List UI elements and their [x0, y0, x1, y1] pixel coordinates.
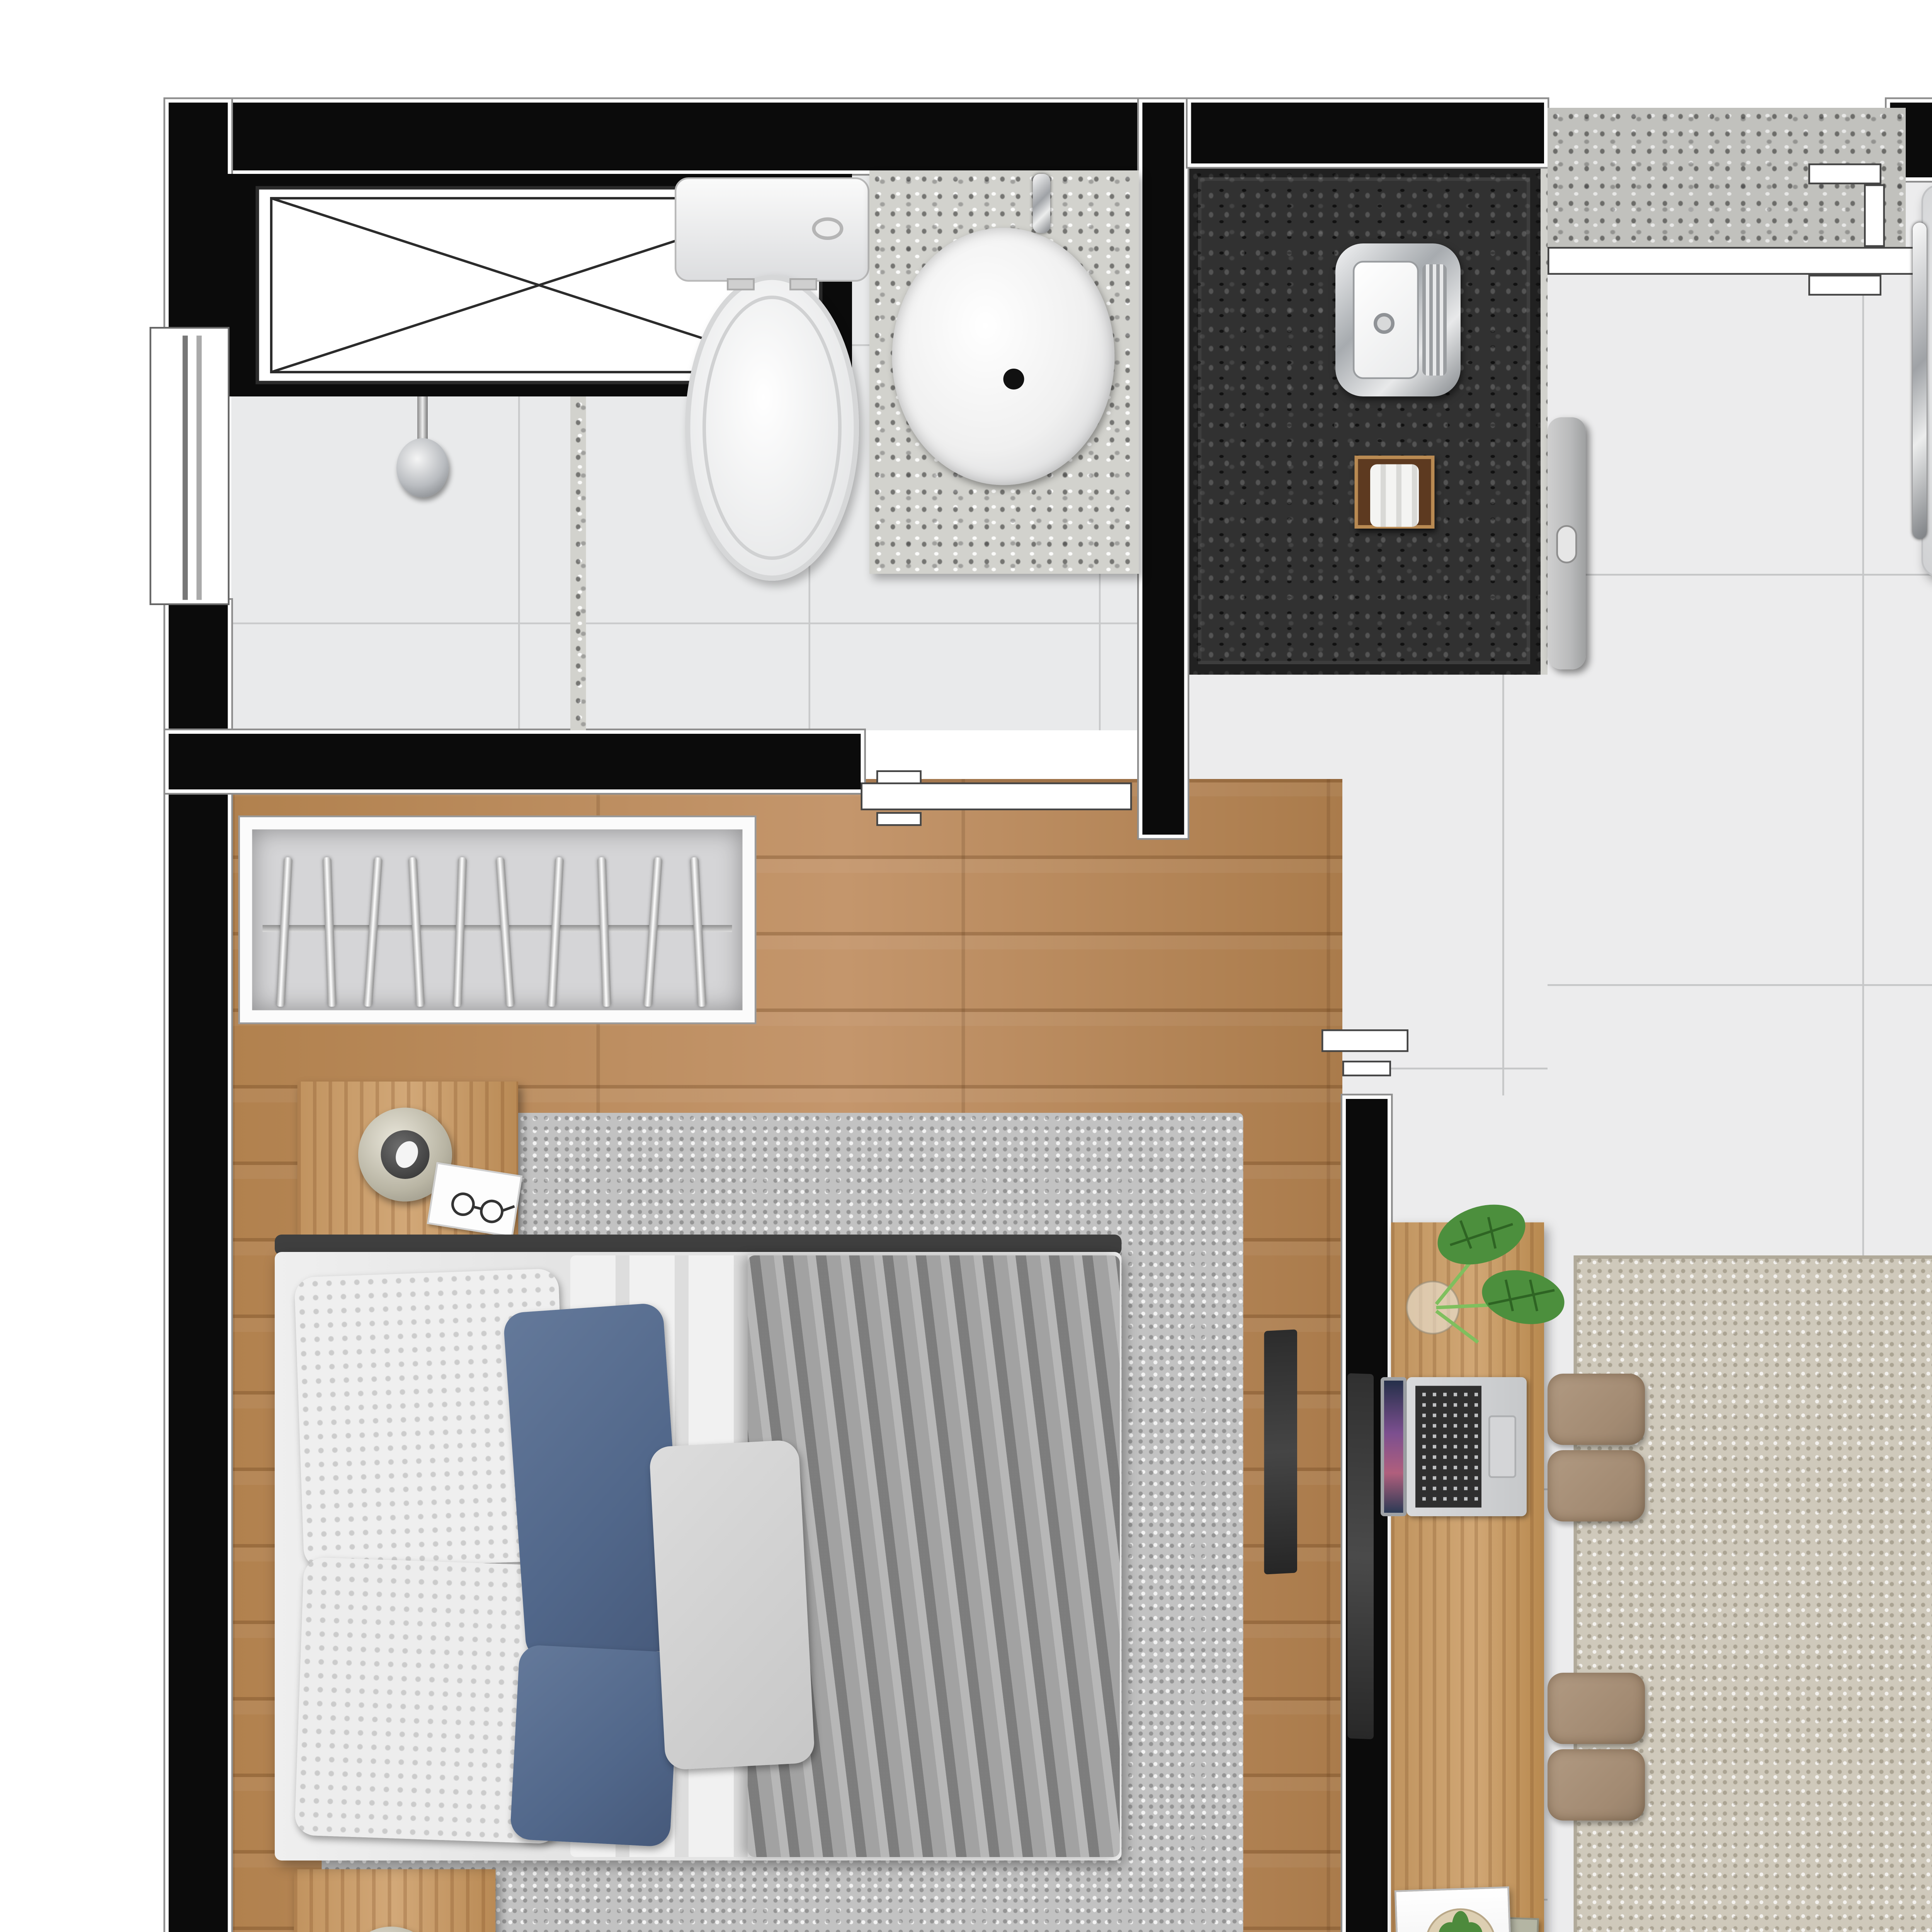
wall-laundry-top [1188, 99, 1548, 167]
laptop [1381, 1377, 1527, 1516]
bathroom-faucet-icon [1033, 174, 1050, 233]
hanger-icon [643, 857, 662, 1007]
window-pane-line [183, 336, 188, 600]
bed [275, 1235, 1122, 1861]
floor-plan: Richard Meier [0, 0, 1932, 1932]
bedroom-door-leaf [861, 782, 1132, 810]
hanger-icon [496, 857, 515, 1007]
hanger-icon [690, 857, 706, 1007]
monstera-plant-icon [1374, 1196, 1565, 1370]
hanger-icon [547, 857, 564, 1007]
laundry-washboard [1422, 264, 1447, 376]
laptop-screen [1381, 1377, 1407, 1516]
entry-door-hinge [1864, 184, 1885, 247]
basin-drain [1003, 369, 1024, 389]
toilet-seat-line [702, 296, 842, 560]
door-handle [876, 770, 922, 784]
laundry-drain [1374, 313, 1395, 334]
shower-granite-divider [570, 396, 586, 730]
toilet-tank [675, 177, 869, 282]
living-rug [1574, 1255, 1932, 1932]
laptop-trackpad [1488, 1415, 1516, 1478]
partition-door-jamb [1342, 1061, 1391, 1077]
stool-cushion [1548, 1374, 1645, 1445]
living-tv [1348, 1373, 1374, 1739]
entry-door-leaf [1548, 247, 1932, 275]
wall-bathroom-right [1139, 99, 1188, 838]
hanger-icon [323, 857, 337, 1007]
wall-left-upper [165, 99, 231, 331]
hanger-icon [453, 857, 467, 1007]
wall-left-main [165, 600, 231, 1932]
entry-door-hinge [1808, 163, 1881, 184]
laptop-keyboard [1415, 1386, 1481, 1508]
stool-1 [1548, 1374, 1645, 1523]
nightstand-2 [294, 1869, 496, 1932]
stool-cushion [1548, 1749, 1645, 1821]
shower-head-icon [396, 438, 449, 497]
stool-2 [1548, 1673, 1645, 1822]
entry-door-hinge [1808, 275, 1881, 296]
toilet-flush-button [812, 218, 844, 240]
partition-door-jamb [1321, 1029, 1408, 1052]
hanger-icon [364, 857, 383, 1007]
towel-box [1355, 456, 1435, 529]
refrigerator-handle [1913, 223, 1927, 539]
bathroom-basin [892, 228, 1115, 485]
toilet-hinge [789, 278, 817, 291]
shower-arm [417, 396, 428, 442]
succulent-pot-icon [1422, 1906, 1499, 1932]
bathroom-window [150, 327, 230, 605]
bedroom-tv [1264, 1329, 1298, 1574]
hanger-icon [408, 857, 425, 1007]
ironing-board-handle [1556, 525, 1577, 563]
toilet-hinge [727, 278, 755, 291]
towel-roll [1370, 464, 1419, 527]
wall-bathroom-bottom [165, 730, 864, 793]
wall-top-bathroom [165, 99, 1188, 174]
bed-pillow-gray-small [649, 1439, 815, 1770]
door-handle [876, 812, 922, 826]
hanger-icon [597, 857, 611, 1007]
laundry-tank [1335, 243, 1461, 396]
bed-pillow-blue-2 [510, 1645, 680, 1847]
toilet-bowl [685, 275, 859, 581]
stool-cushion [1548, 1450, 1645, 1522]
ironing-board [1548, 417, 1586, 670]
window-pane-line [197, 336, 202, 600]
hanger-icon [276, 857, 293, 1007]
stool-cushion [1548, 1673, 1645, 1744]
wardrobe [240, 817, 755, 1022]
